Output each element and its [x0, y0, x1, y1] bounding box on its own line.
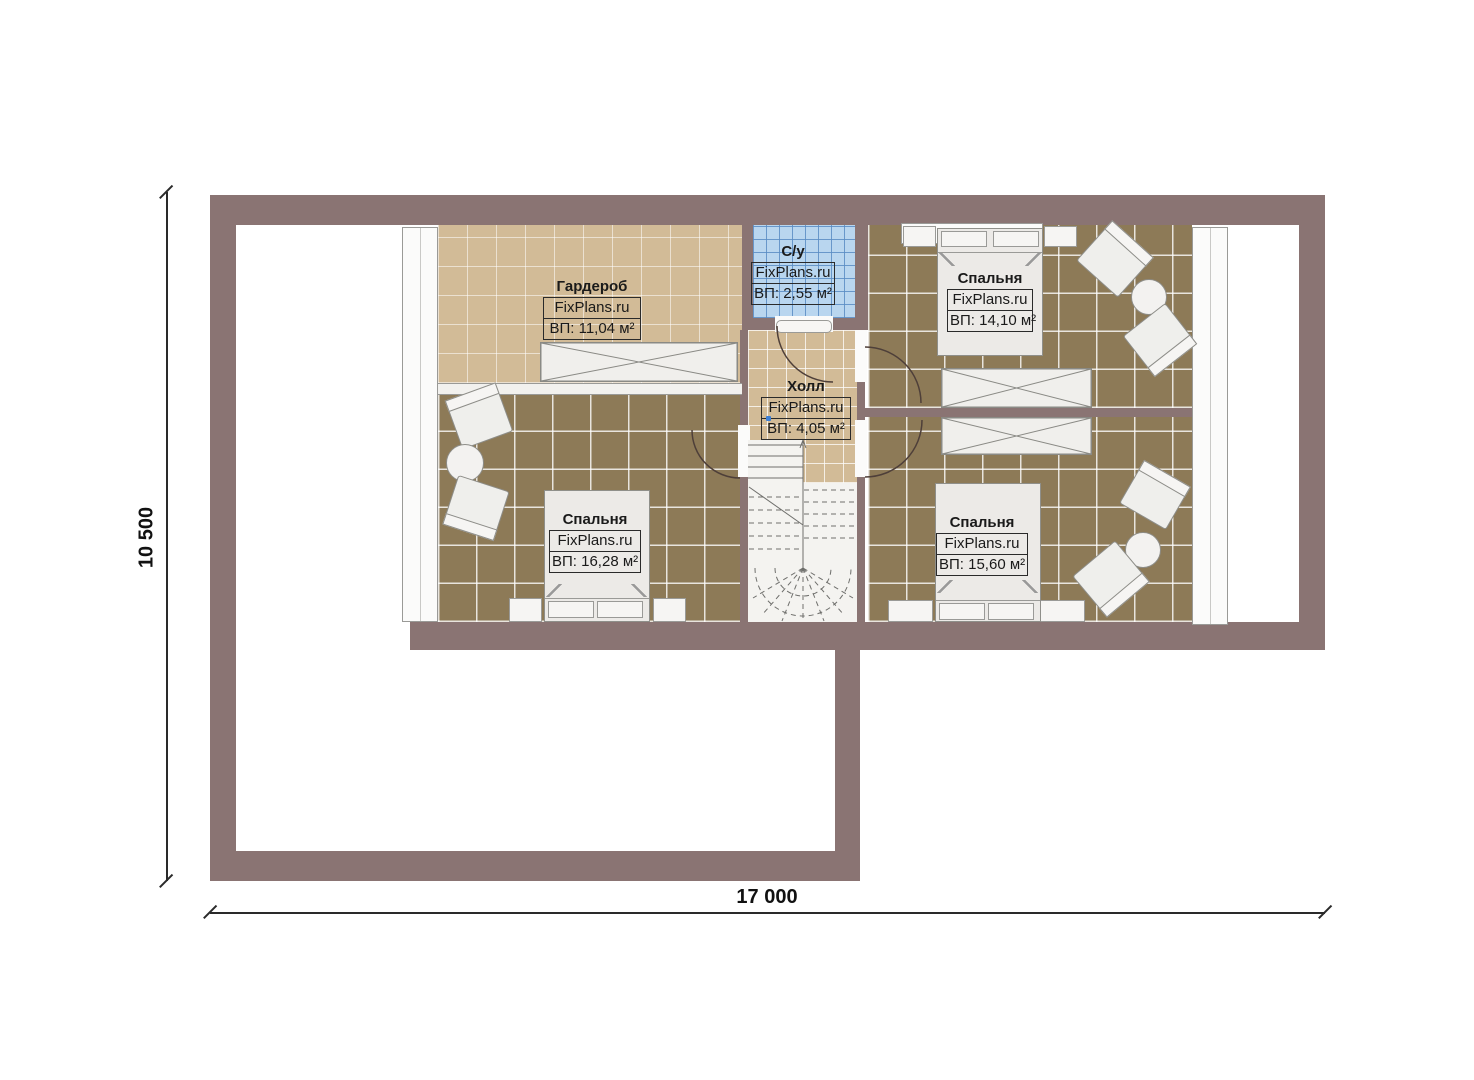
dresser-top-right-icon — [941, 368, 1092, 408]
staircase — [740, 435, 865, 625]
room-area: ВП: 11,04 м² — [544, 318, 640, 339]
room-label-hall: Холл FixPlans.ru ВП: 4,05 м² — [761, 378, 851, 440]
wall-hall-east-mid — [857, 382, 865, 420]
wall-bathroom-bedroom — [855, 225, 868, 330]
bed-line — [936, 600, 1040, 601]
room-name: С/у — [751, 243, 835, 260]
blanket-fold-icon — [631, 584, 647, 597]
room-label-wardrobe: Гардероб FixPlans.ru ВП: 11,04 м² — [543, 278, 641, 340]
room-name: Спальня — [549, 511, 641, 528]
wall-right — [1299, 195, 1325, 650]
room-name: Спальня — [936, 514, 1028, 531]
brand-watermark: FixPlans.ru — [948, 290, 1032, 310]
room-label-bedroom-top-right: Спальня FixPlans.ru ВП: 14,10 м² — [947, 270, 1033, 332]
pillow-icon — [939, 603, 985, 620]
blanket-fold-icon — [937, 580, 953, 593]
wall-annex-bottom — [210, 851, 860, 881]
wall-main-bottom — [410, 622, 1325, 650]
pillow-icon — [597, 601, 643, 618]
pillow-icon — [988, 603, 1034, 620]
wall-top — [210, 195, 1325, 225]
brand-watermark: FixPlans.ru — [544, 298, 640, 318]
room-name: Гардероб — [543, 278, 641, 295]
nightstand-icon — [903, 226, 936, 247]
nightstand-icon — [888, 600, 933, 622]
room-area: ВП: 14,10 м² — [948, 310, 1032, 331]
room-label-bedroom-bottom-right: Спальня FixPlans.ru ВП: 15,60 м² — [936, 514, 1028, 576]
pillow-icon — [993, 231, 1039, 247]
blanket-fold-icon — [939, 253, 955, 266]
brand-watermark: FixPlans.ru — [762, 398, 850, 418]
nightstand-icon — [653, 598, 686, 622]
room-name: Холл — [761, 378, 851, 395]
brand-watermark: FixPlans.ru — [752, 263, 834, 283]
room-name: Спальня — [947, 270, 1033, 287]
room-area: ВП: 2,55 м² — [752, 283, 834, 304]
wall-bedrooms-divider — [865, 408, 1192, 417]
room-label-bathroom: С/у FixPlans.ru ВП: 2,55 м² — [751, 243, 835, 305]
dimension-label-vertical: 10 500 — [136, 488, 159, 588]
pillow-icon — [548, 601, 594, 618]
dimension-line-vertical — [166, 192, 168, 881]
wall-left — [210, 195, 236, 881]
room-area: ВП: 15,60 м² — [937, 554, 1027, 575]
bedroom-tr-door-opening — [855, 330, 867, 382]
nightstand-icon — [1040, 600, 1085, 622]
pillow-icon — [941, 231, 987, 247]
dimension-label-horizontal: 17 000 — [700, 886, 834, 909]
blanket-fold-icon — [1025, 253, 1041, 266]
wall-annex-right — [835, 648, 860, 881]
nightstand-icon — [509, 598, 542, 622]
nightstand-icon — [1044, 226, 1077, 247]
hall-marker-dot — [766, 416, 771, 421]
dimension-line-horizontal — [210, 912, 1325, 914]
bathroom-door-leaf-icon — [776, 320, 832, 333]
room-area: ВП: 16,28 м² — [550, 551, 640, 572]
brand-watermark: FixPlans.ru — [550, 531, 640, 551]
room-area: ВП: 4,05 м² — [762, 418, 850, 439]
bed-line — [545, 598, 649, 599]
blanket-fold-icon — [1022, 580, 1038, 593]
dresser-bottom-right-icon — [941, 417, 1092, 455]
window-left-band — [402, 227, 438, 622]
blanket-fold-icon — [546, 584, 562, 597]
brand-watermark: FixPlans.ru — [937, 534, 1027, 554]
floor-plan: Гардероб FixPlans.ru ВП: 11,04 м² С/у Fi… — [0, 0, 1474, 1080]
wardrobe-unit-icon — [540, 342, 738, 382]
window-right-band — [1192, 227, 1228, 625]
wall-hall-west-upper — [740, 330, 748, 425]
room-label-bedroom-bottom-left: Спальня FixPlans.ru ВП: 16,28 м² — [549, 511, 641, 573]
